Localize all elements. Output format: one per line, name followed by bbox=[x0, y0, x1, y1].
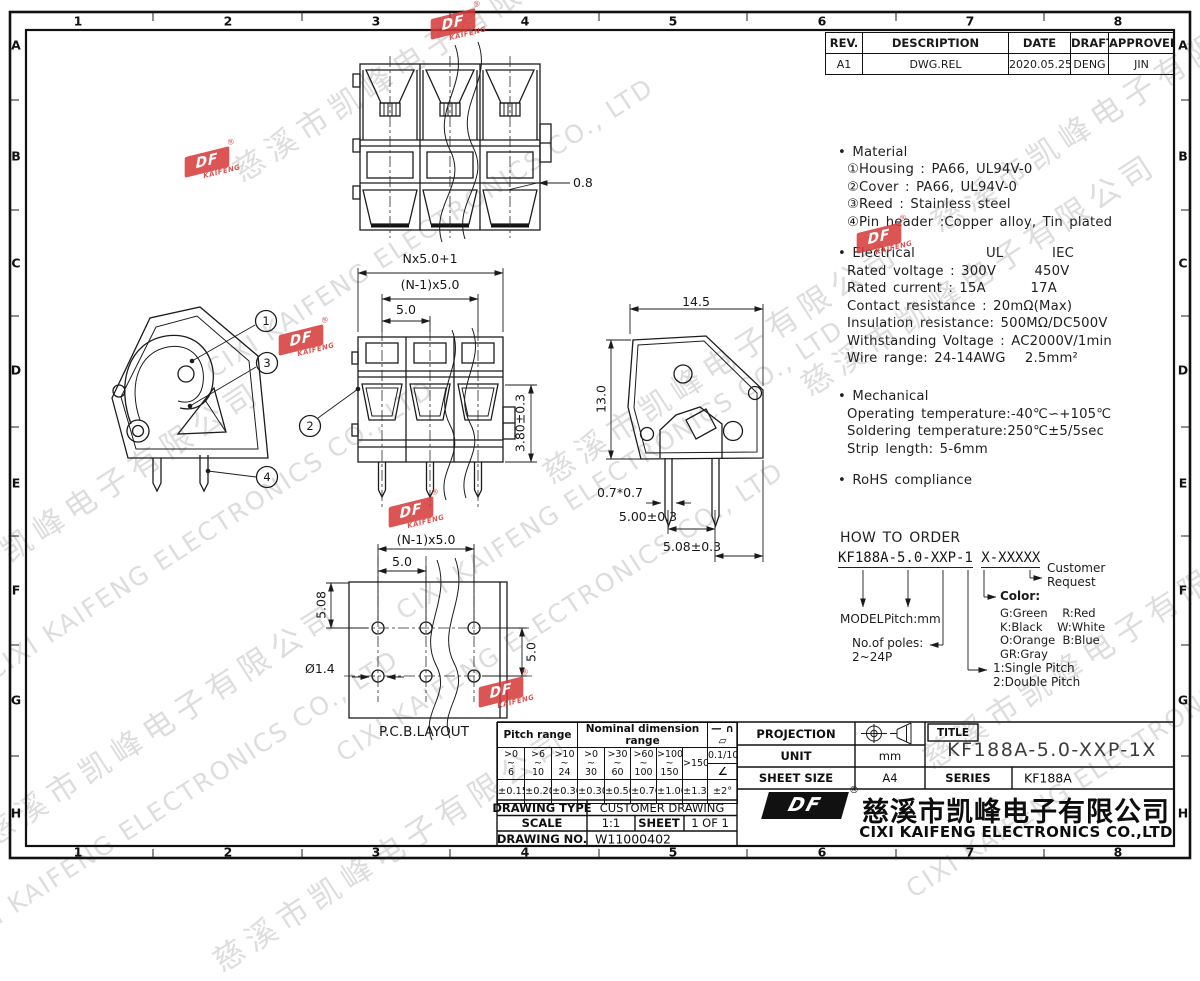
balloon-3: 3 bbox=[263, 356, 270, 370]
sheet-size-value: A4 bbox=[882, 771, 897, 785]
angle-tolerance: ±2° bbox=[708, 780, 738, 804]
electrical-line: Wire range: 24-14AWG 2.5mm² bbox=[847, 351, 1078, 366]
zone-row: A bbox=[1178, 38, 1188, 53]
zone-col: 7 bbox=[966, 845, 975, 860]
nominal-range-header: Nominal dimension range bbox=[578, 723, 708, 748]
tolerance-cell: ±0.50 bbox=[605, 780, 631, 804]
unit-value: mm bbox=[879, 749, 901, 763]
range-cell: >150 bbox=[683, 748, 708, 780]
range-cell: >100 ~ 150 bbox=[657, 748, 683, 780]
zone-col: 1 bbox=[74, 845, 83, 860]
electrical-line: Insulation resistance: 500MΩ/DC500V bbox=[847, 316, 1108, 331]
zone-col: 8 bbox=[1114, 14, 1123, 29]
tolerance-cell: ±0.30 bbox=[578, 780, 605, 804]
tolerance-cell: ±0.70 bbox=[631, 780, 657, 804]
projection-label: PROJECTION bbox=[756, 727, 835, 741]
tolerance-cell: ±0.30 bbox=[552, 780, 578, 804]
rev-value: A1 bbox=[826, 54, 863, 75]
drawing-title: KF188A-5.0-XXP-1X bbox=[947, 739, 1157, 761]
order-code-main: KF188A-5.0-XXP-1 bbox=[838, 550, 973, 568]
mechanical-line: Soldering temperature:250℃±5/5sec bbox=[847, 424, 1104, 439]
zone-col: 7 bbox=[966, 14, 975, 29]
tolerance-header-row: Pitch range Nominal dimension range — ∩ … bbox=[498, 723, 738, 748]
unit-label: UNIT bbox=[780, 749, 811, 763]
zone-col: 3 bbox=[372, 845, 381, 860]
zone-col: 5 bbox=[669, 14, 678, 29]
dim-pcb-between: (N-1)x5.0 bbox=[397, 532, 456, 547]
description-header: DESCRIPTION bbox=[863, 33, 1009, 54]
tolerance-cell: ±0.20 bbox=[525, 780, 552, 804]
order-color-option: O:Orange B:Blue bbox=[1000, 633, 1100, 647]
order-color-option: G:Green R:Red bbox=[1000, 606, 1096, 620]
zone-row: D bbox=[1178, 363, 1188, 378]
zone-row: H bbox=[11, 806, 21, 821]
rev-header: REV. bbox=[826, 33, 863, 54]
zone-row: F bbox=[1179, 583, 1188, 598]
zone-col: 8 bbox=[1114, 845, 1123, 860]
revision-table: REV. DESCRIPTION DATE DRAFTER APPROVER A… bbox=[825, 32, 1175, 75]
tolerance-cell: ±1.00 bbox=[657, 780, 683, 804]
material-title: • Material bbox=[838, 145, 908, 160]
angle-symbol: ∠ bbox=[708, 764, 738, 780]
range-cell: >60 ~ 100 bbox=[631, 748, 657, 780]
revision-row: A1 DWG.REL 2020.05.25 DENG JIN bbox=[826, 54, 1175, 75]
approver-header: APPROVER bbox=[1109, 33, 1175, 54]
electrical-line: Rated current : 15A 17A bbox=[847, 281, 1057, 296]
balloon-2: 2 bbox=[306, 419, 313, 433]
zone-col: 2 bbox=[224, 14, 233, 29]
date-header: DATE bbox=[1009, 33, 1071, 54]
sheet-value: 1 OF 1 bbox=[691, 816, 729, 830]
order-poles-label: No.of poles: 2~24P bbox=[852, 636, 923, 664]
zone-col: 1 bbox=[74, 14, 83, 29]
drawing-no-label: DRAWING NO. bbox=[497, 832, 587, 846]
balloon-4: 4 bbox=[263, 470, 270, 484]
dim-pcb-hole: Ø1.4 bbox=[305, 661, 335, 676]
description-value: DWG.REL bbox=[863, 54, 1009, 75]
zone-row: F bbox=[12, 583, 21, 598]
zone-col: 4 bbox=[521, 845, 530, 860]
zone-row: H bbox=[1178, 806, 1188, 821]
scale-value: 1:1 bbox=[602, 816, 621, 830]
zone-row: C bbox=[1178, 256, 1187, 271]
order-code-suffix: X-XXXXX bbox=[981, 550, 1040, 568]
zone-col: 2 bbox=[224, 845, 233, 860]
electrical-ul-header: UL bbox=[986, 246, 1003, 261]
dim-side-height: 13.0 bbox=[594, 385, 609, 413]
drafter-header: DRAFTER bbox=[1071, 33, 1109, 54]
dim-pcb-pitch: 5.0 bbox=[392, 554, 412, 569]
geometry-symbols: — ∩ ▱ bbox=[708, 723, 738, 748]
electrical-line: Rated voltage : 300V 450V bbox=[847, 264, 1069, 279]
zone-row: E bbox=[1179, 476, 1188, 491]
mechanical-title: • Mechanical bbox=[838, 389, 929, 404]
balloon-1: 1 bbox=[262, 314, 269, 328]
order-code: KF188A-5.0-XXP-1 X-XXXXX bbox=[838, 550, 1040, 566]
kaifeng-logo-icon: DF ® bbox=[765, 792, 845, 819]
dim-pin-square: 0.7*0.7 bbox=[597, 485, 643, 500]
order-color-option: K:Black W:White bbox=[1000, 620, 1105, 634]
dim-pcb-col: 5.0 bbox=[524, 642, 539, 662]
electrical-title: • Electrical bbox=[838, 246, 915, 261]
approver-value: JIN bbox=[1109, 54, 1175, 75]
zone-col: 5 bbox=[669, 845, 678, 860]
tolerance-value-row: ±0.15 ±0.20 ±0.30 ±0.30 ±0.50 ±0.70 ±1.0… bbox=[498, 780, 738, 804]
material-line: ②Cover : PA66, UL94V-0 bbox=[847, 180, 1017, 195]
scale-label: SCALE bbox=[522, 816, 563, 830]
material-line: ③Reed : Stainless steel bbox=[847, 197, 1011, 212]
order-pitch-type-label: 1:Single Pitch 2:Double Pitch bbox=[993, 661, 1080, 689]
material-line: ④Pin header :Copper alloy, Tin plated bbox=[847, 215, 1112, 230]
kaifeng-logo-box: DF bbox=[761, 792, 849, 819]
range-cell: >30 ~ 60 bbox=[605, 748, 631, 780]
rohs-line: • RoHS compliance bbox=[838, 473, 972, 488]
order-model-label: MODEL bbox=[840, 612, 883, 626]
pcb-layout-label: P.C.B.LAYOUT bbox=[379, 724, 469, 740]
date-value: 2020.05.25 bbox=[1009, 54, 1071, 75]
mechanical-line: Operating temperature:-40℃∽+105℃ bbox=[847, 407, 1111, 422]
sheet-size-label: SHEET SIZE bbox=[759, 771, 833, 785]
order-color-option: GR:Gray bbox=[1000, 647, 1048, 661]
dim-side-width: 14.5 bbox=[682, 294, 710, 309]
mechanical-line: Strip length: 5-6mm bbox=[847, 442, 988, 457]
dim-height-offset: 3.80±0.3 bbox=[513, 394, 528, 452]
range-cell: >6 ~ 10 bbox=[525, 748, 552, 780]
series-label: SERIES bbox=[945, 771, 990, 785]
order-pitch-label: Pitch:mm bbox=[884, 612, 941, 626]
dim-overall: Nx5.0+1 bbox=[402, 251, 457, 266]
title-label: TITLE bbox=[937, 727, 969, 739]
sheet-label: SHEET bbox=[638, 816, 679, 830]
dim-row-spacing: 5.08±0.3 bbox=[663, 539, 721, 554]
order-customer-label: Customer Request bbox=[1047, 561, 1105, 589]
range-row: >0 ~ 6 >6 ~ 10 >10 ~ 24 >0 ~ 30 >30 ~ 60… bbox=[498, 748, 738, 764]
zone-col: 3 bbox=[372, 14, 381, 29]
zone-row: C bbox=[11, 256, 20, 271]
dim-pin-spacing: 5.00±0.3 bbox=[619, 509, 677, 524]
electrical-line: Withstanding Voltage : AC2000V/1min bbox=[847, 334, 1112, 349]
revision-header-row: REV. DESCRIPTION DATE DRAFTER APPROVER bbox=[826, 33, 1175, 54]
zone-col: 6 bbox=[818, 845, 827, 860]
series-value: KF188A bbox=[1024, 771, 1072, 786]
range-cell: >0 ~ 30 bbox=[578, 748, 605, 780]
zone-row: B bbox=[11, 149, 21, 164]
zone-row: B bbox=[1178, 149, 1188, 164]
electrical-iec-header: IEC bbox=[1052, 246, 1074, 261]
dim-between: (N-1)x5.0 bbox=[401, 277, 460, 292]
tolerance-cell: ±1.30 bbox=[683, 780, 708, 804]
zone-row: G bbox=[11, 693, 21, 708]
range-cell: >10 ~ 24 bbox=[552, 748, 578, 780]
dim-top-tab: 0.8 bbox=[573, 175, 593, 190]
tolerance-table: Pitch range Nominal dimension range — ∩ … bbox=[497, 722, 738, 804]
drafter-value: DENG bbox=[1071, 54, 1109, 75]
zone-col: 4 bbox=[521, 14, 530, 29]
kaifeng-logo-letters: DF bbox=[786, 794, 825, 816]
dim-pitch: 5.0 bbox=[396, 302, 416, 317]
zone-row: E bbox=[12, 476, 21, 491]
pitch-range-header: Pitch range bbox=[498, 723, 578, 748]
tolerance-cell: ±0.15 bbox=[498, 780, 525, 804]
zone-row: D bbox=[11, 363, 21, 378]
zone-row: A bbox=[11, 38, 21, 53]
electrical-line: Contact resistance : 20mΩ(Max) bbox=[847, 299, 1072, 314]
zone-row: G bbox=[1178, 693, 1188, 708]
drawing-no-value: W11000402 bbox=[595, 831, 671, 846]
order-title: HOW TO ORDER bbox=[840, 530, 960, 546]
order-color-title: Color: bbox=[1000, 589, 1040, 603]
zone-col: 6 bbox=[818, 14, 827, 29]
dim-pcb-row: 5.08 bbox=[314, 591, 329, 619]
flatness-tolerance: 0.1/10 bbox=[708, 748, 738, 764]
material-line: ①Housing : PA66, UL94V-0 bbox=[847, 162, 1033, 177]
engineering-drawing-sheet: 慈溪市凯峰电子有限公司 慈溪市凯峰电子有限公司 CIXI KAIFENG ELE… bbox=[0, 0, 1200, 876]
company-name-en: CIXI KAIFENG ELECTRONICS CO.,LTD bbox=[858, 823, 1174, 841]
range-cell: >0 ~ 6 bbox=[498, 748, 525, 780]
